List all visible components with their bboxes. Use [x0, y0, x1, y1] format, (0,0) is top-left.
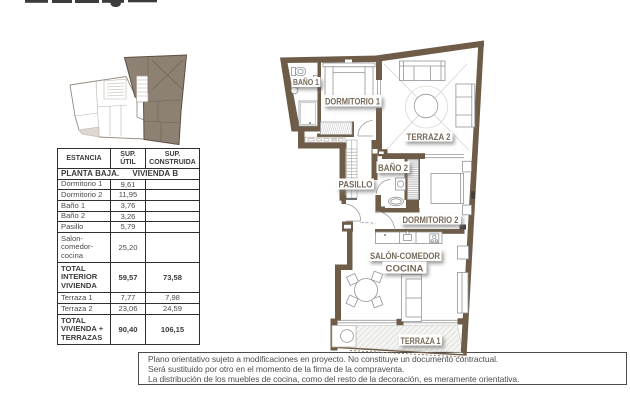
svg-text:SALÓN-COMEDOR: SALÓN-COMEDOR [370, 250, 440, 262]
svg-text:BAÑO 2: BAÑO 2 [378, 163, 408, 173]
svg-text:COCINA: COCINA [386, 264, 424, 275]
svg-text:DORMITORIO 1: DORMITORIO 1 [325, 97, 381, 108]
svg-text:TERRAZA 2: TERRAZA 2 [407, 132, 451, 142]
svg-text:DORMITORIO 2: DORMITORIO 2 [403, 215, 459, 226]
svg-text:TERRAZA 1: TERRAZA 1 [401, 336, 441, 346]
svg-text:BAÑO 1: BAÑO 1 [293, 78, 319, 87]
svg-text:PASILLO: PASILLO [339, 180, 373, 190]
